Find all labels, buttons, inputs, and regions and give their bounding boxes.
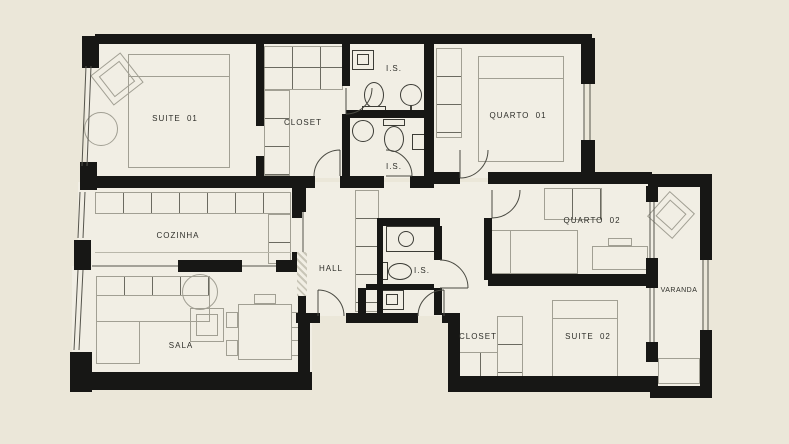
closet02-shelf-column (497, 316, 523, 380)
pedestal-sink-icon-is01 (400, 84, 422, 106)
wall-entry-cell-left (358, 288, 366, 315)
room-label-is-02: I.S. (380, 162, 408, 171)
room-label-quarto-02: QUARTO 02 (548, 216, 636, 225)
wall-notch-left (298, 318, 310, 378)
room-label-sala: SALA (158, 341, 204, 350)
laptop-icon-quarto02 (608, 238, 632, 246)
room-label-cozinha: COZINHA (140, 231, 216, 240)
wall-suite01-closet-a (256, 44, 264, 126)
wall-sala-bottom (74, 372, 312, 390)
wall-entry-cell-top (366, 284, 434, 290)
closet01-shelf-top-split (264, 67, 343, 68)
closet01-shelf-top (264, 46, 343, 90)
table-icon-varanda (658, 358, 700, 384)
kitchen-counter-right (268, 214, 291, 264)
wall-quarto02-suite02 (488, 274, 652, 286)
wall-varanda-pier-low (646, 342, 658, 362)
wall-hall-sala-b (298, 296, 306, 316)
room-label-is-03: I.S. (408, 266, 436, 275)
chair-icon-sala-1 (226, 312, 238, 328)
round-table-icon-sala (182, 274, 218, 310)
bed-icon-suite01 (128, 54, 230, 168)
toilet-icon-is01 (364, 82, 384, 108)
room-label-quarto-01: QUARTO 01 (476, 111, 560, 120)
wall-hall-sala-a (298, 186, 306, 212)
wall-is01-is02 (346, 110, 430, 118)
wall-is03-left (377, 218, 383, 317)
side-table-icon-suite01 (84, 112, 118, 146)
room-label-suite-01: SUITE 01 (140, 114, 210, 123)
wall-exterior-top (95, 34, 592, 44)
bed-icon-quarto01 (478, 56, 564, 162)
armchair-seat-sala (196, 314, 218, 336)
toilet-tank-is02 (383, 119, 405, 126)
room-label-is-01: I.S. (380, 64, 408, 73)
wall-quarto01-right-top (581, 38, 595, 84)
window-varanda-right (703, 260, 708, 330)
wall-suite02-bottom (448, 376, 658, 392)
wall-mid-left-seg-a (88, 176, 315, 188)
dining-table-icon-sala (238, 304, 292, 360)
wall-is-right (424, 44, 434, 176)
wall-varanda-pier-top (646, 186, 658, 202)
vanity-sink-is03 (398, 231, 414, 247)
wall-is03-right-b (434, 288, 442, 315)
room-label-varanda: VARANDA (656, 287, 702, 294)
wall-closet-is01-b (342, 114, 350, 180)
desk-icon-quarto02 (592, 246, 648, 270)
kitchen-counter-line (95, 252, 291, 253)
room-label-closet-01: CLOSET (272, 118, 334, 127)
sink-basin-is01 (357, 54, 369, 65)
window-quarto01-right (584, 84, 590, 140)
floor-plan-canvas: SUITE 01 CLOSET I.S. QUARTO 01 I.S. COZI… (0, 0, 789, 444)
chair-icon-sala-5 (254, 294, 276, 304)
wall-hall-sala-hatch (297, 252, 307, 296)
bed-pillow-line-quarto01 (478, 78, 564, 79)
wall-is03-top (380, 218, 440, 226)
entry-cabinet-inner (386, 294, 398, 305)
wall-suite01-closet-b (256, 156, 264, 180)
bed-pillow-line-quarto02 (510, 230, 511, 274)
sofa-chaise-icon-sala (96, 321, 140, 364)
wall-mid-left-seg-c (410, 176, 434, 188)
bed-pillow-line-suite02 (552, 318, 618, 319)
wall-varanda-pier-mid (646, 258, 658, 288)
wall-varanda-right-bottom (700, 330, 712, 390)
wall-quarto02-left (484, 218, 492, 280)
toilet-icon-is02 (384, 126, 404, 152)
wall-kitchen-sala-a (178, 260, 242, 272)
wall-corner-topleft (82, 36, 99, 68)
wall-mid-right-seg-b (488, 172, 652, 184)
room-label-closet-02: CLOSET (446, 332, 510, 341)
chair-icon-sala-2 (226, 340, 238, 356)
wall-is03-right-a (434, 226, 442, 260)
wardrobe-icon-quarto01 (436, 48, 462, 138)
room-label-suite-02: SUITE 02 (552, 332, 624, 341)
wall-varanda-right-top (700, 182, 712, 260)
wall-left-pier-2 (74, 240, 91, 270)
closet01-shelf-left (264, 90, 290, 176)
room-label-hall: HALL (310, 264, 352, 273)
wall-notch-right (448, 320, 460, 384)
bed-pillow-line-suite01 (128, 76, 230, 77)
bed-icon-quarto02 (490, 230, 578, 274)
kitchen-counter-top (95, 192, 291, 214)
wall-closet-is01-a (342, 44, 350, 86)
sink-icon-is02 (352, 120, 374, 142)
